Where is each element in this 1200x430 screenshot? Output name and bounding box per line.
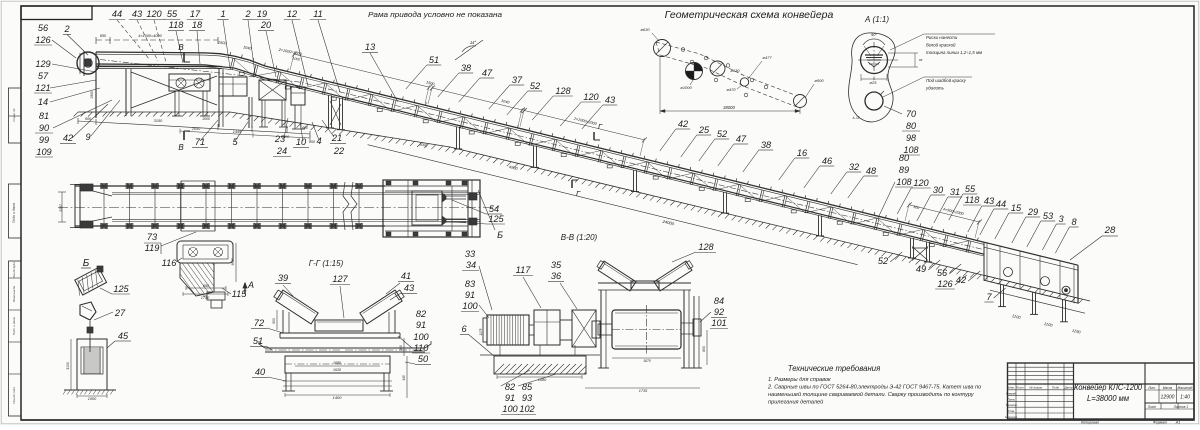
svg-text:51: 51 xyxy=(253,336,263,346)
svg-text:прилегания деталей: прилегания деталей xyxy=(768,399,823,406)
svg-text:56: 56 xyxy=(937,268,948,278)
svg-text:38000: 38000 xyxy=(723,105,735,110)
svg-text:100: 100 xyxy=(502,404,518,414)
svg-text:Инв.№ дубл.: Инв.№ дубл. xyxy=(12,261,16,278)
svg-text:99: 99 xyxy=(39,135,49,145)
svg-text:32: 32 xyxy=(849,162,859,172)
svg-text:120: 120 xyxy=(913,178,929,188)
svg-text:33: 33 xyxy=(465,249,476,259)
svg-text:ø630: ø630 xyxy=(640,27,650,32)
svg-text:850: 850 xyxy=(702,346,706,352)
svg-text:52: 52 xyxy=(717,129,727,139)
svg-text:1080: 1080 xyxy=(333,361,341,365)
svg-text:127: 127 xyxy=(332,274,348,284)
svg-text:16: 16 xyxy=(797,148,808,158)
svg-text:15: 15 xyxy=(1011,203,1022,213)
svg-text:80: 80 xyxy=(906,121,916,131)
svg-text:52: 52 xyxy=(530,81,540,91)
svg-text:5: 5 xyxy=(232,137,238,147)
svg-text:1870: 1870 xyxy=(643,359,651,363)
svg-text:4: 4 xyxy=(316,136,321,146)
svg-text:3100: 3100 xyxy=(66,362,70,370)
svg-text:128: 128 xyxy=(555,86,571,96)
svg-text:44: 44 xyxy=(996,199,1006,209)
svg-text:Подп. и дата: Подп. и дата xyxy=(12,203,16,223)
svg-text:А: А xyxy=(247,280,254,290)
svg-text:Под шайбой краску: Под шайбой краску xyxy=(926,78,967,83)
svg-text:Б: Б xyxy=(497,230,503,240)
svg-text:29: 29 xyxy=(1027,207,1038,217)
svg-text:4×1000=4000: 4×1000=4000 xyxy=(138,34,162,38)
svg-text:28: 28 xyxy=(1104,225,1116,236)
svg-text:20: 20 xyxy=(260,20,272,30)
svg-text:9507: 9507 xyxy=(231,258,235,265)
svg-text:Конвейер КЛС-1200: Конвейер КЛС-1200 xyxy=(1074,382,1142,392)
svg-text:Инв.№ подл.: Инв.№ подл. xyxy=(12,386,16,403)
svg-text:Рама привода условно не показа: Рама привода условно не показана xyxy=(368,10,502,19)
svg-text:L=38000 мм: L=38000 мм xyxy=(1087,394,1130,403)
svg-text:2. Сварные швы по ГОСТ 5264-80: 2. Сварные швы по ГОСТ 5264-80,электроды… xyxy=(767,385,981,391)
svg-text:91: 91 xyxy=(505,393,515,403)
svg-text:1740: 1740 xyxy=(201,296,210,300)
svg-text:10: 10 xyxy=(296,137,307,147)
svg-text:№ докум.: № докум. xyxy=(1029,386,1042,390)
svg-text:Справ. №: Справ. № xyxy=(12,108,16,122)
svg-text:Подп. и дата: Подп. и дата xyxy=(12,317,16,335)
svg-text:Пров.: Пров. xyxy=(1008,397,1016,401)
svg-text:57: 57 xyxy=(38,71,49,81)
svg-text:Ь-\-д: Ь-\-д xyxy=(853,116,860,120)
svg-text:117: 117 xyxy=(516,265,532,275)
svg-text:1680: 1680 xyxy=(538,378,547,382)
svg-text:наименьшей толщине свариваемой: наименьшей толщине свариваемой детали. С… xyxy=(768,391,975,398)
svg-text:101: 101 xyxy=(711,318,726,328)
svg-text:1: 1 xyxy=(220,9,225,19)
svg-text:850: 850 xyxy=(100,34,107,38)
svg-text:121: 121 xyxy=(35,83,50,93)
svg-text:3: 3 xyxy=(1058,214,1064,224)
svg-text:Н.контр.: Н.контр. xyxy=(1005,415,1018,419)
svg-text:345: 345 xyxy=(402,375,406,381)
svg-text:52: 52 xyxy=(878,256,888,266)
svg-text:24: 24 xyxy=(276,146,287,156)
svg-text:2050: 2050 xyxy=(191,127,201,131)
svg-text:116: 116 xyxy=(162,258,178,268)
svg-text:47: 47 xyxy=(482,68,493,78)
svg-text:82: 82 xyxy=(416,309,426,319)
svg-text:18: 18 xyxy=(192,20,203,30)
svg-text:51: 51 xyxy=(429,55,439,65)
svg-text:108: 108 xyxy=(896,177,912,187)
svg-text:54: 54 xyxy=(489,204,499,214)
svg-text:2: 2 xyxy=(244,9,250,19)
svg-text:42: 42 xyxy=(678,119,688,129)
svg-text:46: 46 xyxy=(822,156,833,166)
svg-text:1445: 1445 xyxy=(233,130,242,134)
svg-text:ø470: ø470 xyxy=(726,87,736,92)
svg-text:118: 118 xyxy=(965,195,981,205)
svg-text:А (1:1): А (1:1) xyxy=(864,15,889,24)
svg-text:37: 37 xyxy=(512,75,523,85)
svg-text:Изм.: Изм. xyxy=(1008,386,1015,390)
svg-text:92: 92 xyxy=(714,307,724,317)
svg-text:Масштаб: Масштаб xyxy=(1178,386,1193,390)
svg-text:93: 93 xyxy=(522,393,533,403)
svg-text:84: 84 xyxy=(714,296,724,306)
svg-text:2: 2 xyxy=(63,24,69,34)
svg-text:27: 27 xyxy=(114,308,126,318)
svg-text:Г-Г (1:15): Г-Г (1:15) xyxy=(309,259,344,268)
svg-text:ø477: ø477 xyxy=(762,55,772,60)
svg-text:118: 118 xyxy=(169,20,185,30)
svg-text:34: 34 xyxy=(466,260,476,270)
svg-text:1. Размеры для справок: 1. Размеры для справок xyxy=(768,377,831,383)
svg-text:Лист: Лист xyxy=(1147,405,1157,409)
svg-text:В: В xyxy=(178,43,184,52)
svg-text:160: 160 xyxy=(399,345,403,351)
svg-text:110: 110 xyxy=(414,343,430,353)
svg-text:81: 81 xyxy=(39,111,49,121)
svg-text:ø630: ø630 xyxy=(730,68,740,73)
svg-text:ø500: ø500 xyxy=(814,78,824,83)
svg-text:108: 108 xyxy=(903,145,918,155)
svg-text:120: 120 xyxy=(583,92,599,102)
svg-text:ø25: ø25 xyxy=(870,80,878,85)
svg-text:Листов 1: Листов 1 xyxy=(1173,405,1188,409)
svg-text:55: 55 xyxy=(167,9,178,19)
svg-text:19: 19 xyxy=(257,9,267,19)
svg-text:100: 100 xyxy=(462,301,478,311)
svg-text:Копировал: Копировал xyxy=(1081,421,1099,425)
svg-text:31: 31 xyxy=(950,187,960,197)
svg-text:38: 38 xyxy=(761,140,772,150)
svg-text:91: 91 xyxy=(416,320,426,330)
svg-text:Подп.: Подп. xyxy=(1052,386,1060,390)
svg-text:14: 14 xyxy=(38,97,48,107)
svg-text:70: 70 xyxy=(906,109,916,119)
svg-text:30: 30 xyxy=(933,185,944,195)
svg-text:42: 42 xyxy=(63,133,73,143)
svg-text:68: 68 xyxy=(919,58,923,62)
svg-text:Технические требования: Технические требования xyxy=(788,364,881,373)
svg-text:39: 39 xyxy=(278,273,288,283)
svg-text:90°: 90° xyxy=(871,32,877,37)
svg-text:91: 91 xyxy=(465,290,475,300)
svg-text:9: 9 xyxy=(85,132,90,142)
svg-text:102: 102 xyxy=(519,404,534,414)
svg-text:1:40: 1:40 xyxy=(1180,395,1190,401)
svg-text:126: 126 xyxy=(937,279,953,289)
svg-text:25: 25 xyxy=(698,125,710,135)
svg-text:12: 12 xyxy=(287,9,297,19)
svg-text:129: 129 xyxy=(35,59,50,69)
svg-text:Разраб.: Разраб. xyxy=(1006,392,1017,396)
svg-text:90: 90 xyxy=(39,123,50,133)
svg-text:45: 45 xyxy=(118,331,129,341)
svg-text:1000: 1000 xyxy=(202,117,210,121)
svg-text:120: 120 xyxy=(146,9,162,19)
svg-text:Лист: Лист xyxy=(1015,386,1024,390)
svg-text:82: 82 xyxy=(505,382,515,392)
svg-text:126: 126 xyxy=(35,35,51,45)
svg-text:14°: 14° xyxy=(470,40,477,45)
svg-text:Масса: Масса xyxy=(1163,386,1173,390)
svg-text:89: 89 xyxy=(899,165,909,175)
svg-text:43: 43 xyxy=(132,9,143,19)
svg-text:7: 7 xyxy=(986,292,992,302)
svg-text:44: 44 xyxy=(112,9,122,19)
svg-text:109: 109 xyxy=(36,147,51,157)
svg-text:Геометрическая схема конвейера: Геометрическая схема конвейера xyxy=(665,9,834,21)
svg-text:1630: 1630 xyxy=(333,368,341,372)
svg-text:72: 72 xyxy=(254,318,264,328)
svg-text:1000: 1000 xyxy=(88,397,97,401)
svg-text:38: 38 xyxy=(461,63,472,73)
svg-text:Риски нанести: Риски нанести xyxy=(926,35,958,40)
svg-text:12900: 12900 xyxy=(1161,395,1175,401)
svg-text:3150: 3150 xyxy=(154,119,163,123)
svg-text:43: 43 xyxy=(984,196,995,206)
svg-text:36: 36 xyxy=(551,271,562,281)
svg-text:8: 8 xyxy=(1071,217,1077,227)
svg-text:Т.контр.: Т.контр. xyxy=(1005,403,1017,407)
svg-text:128: 128 xyxy=(698,242,714,252)
svg-text:толщина линии 1,2÷1,5 мм: толщина линии 1,2÷1,5 мм xyxy=(926,50,982,55)
svg-text:ø1000: ø1000 xyxy=(680,85,692,90)
svg-text:43: 43 xyxy=(605,95,616,105)
svg-text:Дата: Дата xyxy=(1064,386,1073,390)
svg-text:13: 13 xyxy=(365,42,376,52)
svg-text:1400: 1400 xyxy=(333,395,343,400)
svg-text:40: 40 xyxy=(255,367,266,377)
svg-text:Формат: Формат xyxy=(1153,421,1167,425)
svg-text:3387: 3387 xyxy=(59,203,63,212)
svg-text:47: 47 xyxy=(736,134,747,144)
svg-text:600: 600 xyxy=(302,126,308,130)
svg-text:125: 125 xyxy=(488,214,504,224)
svg-text:Лит.: Лит. xyxy=(1147,386,1156,390)
svg-text:55: 55 xyxy=(965,184,976,194)
svg-text:650: 650 xyxy=(203,284,210,288)
svg-text:41: 41 xyxy=(401,271,411,281)
svg-text:Б: Б xyxy=(83,258,90,269)
svg-text:22: 22 xyxy=(333,146,344,156)
svg-text:A1: A1 xyxy=(1175,421,1180,425)
svg-text:71: 71 xyxy=(195,137,205,147)
svg-text:850: 850 xyxy=(309,140,315,144)
svg-text:125: 125 xyxy=(113,284,129,294)
svg-text:В-В (1:20): В-В (1:20) xyxy=(561,233,598,242)
svg-text:98: 98 xyxy=(906,133,916,143)
svg-text:53: 53 xyxy=(1043,211,1054,221)
svg-text:35: 35 xyxy=(551,260,562,270)
svg-text:удалить: удалить xyxy=(925,86,945,91)
svg-text:83: 83 xyxy=(465,279,476,289)
svg-text:48: 48 xyxy=(866,166,877,176)
svg-text:85: 85 xyxy=(522,382,533,392)
svg-text:Взам.инв.№: Взам.инв.№ xyxy=(12,285,16,302)
svg-text:1735: 1735 xyxy=(639,389,648,393)
svg-text:42: 42 xyxy=(956,275,966,285)
svg-text:500: 500 xyxy=(272,318,276,324)
svg-text:17: 17 xyxy=(190,9,201,19)
svg-text:11: 11 xyxy=(313,9,323,19)
svg-text:43: 43 xyxy=(404,283,415,293)
svg-text:500: 500 xyxy=(85,117,92,121)
svg-text:Утв.: Утв. xyxy=(1008,409,1015,413)
svg-text:73: 73 xyxy=(147,232,158,242)
svg-text:50: 50 xyxy=(418,354,429,364)
svg-text:6: 6 xyxy=(461,324,467,334)
svg-text:белой краской: белой краской xyxy=(926,43,956,48)
svg-text:1950: 1950 xyxy=(90,91,94,99)
svg-text:1175: 1175 xyxy=(479,328,483,335)
svg-text:В: В xyxy=(178,143,184,152)
svg-text:56: 56 xyxy=(38,23,49,33)
svg-text:100: 100 xyxy=(413,332,429,342)
svg-text:49: 49 xyxy=(916,264,926,274)
svg-text:119: 119 xyxy=(145,243,160,253)
